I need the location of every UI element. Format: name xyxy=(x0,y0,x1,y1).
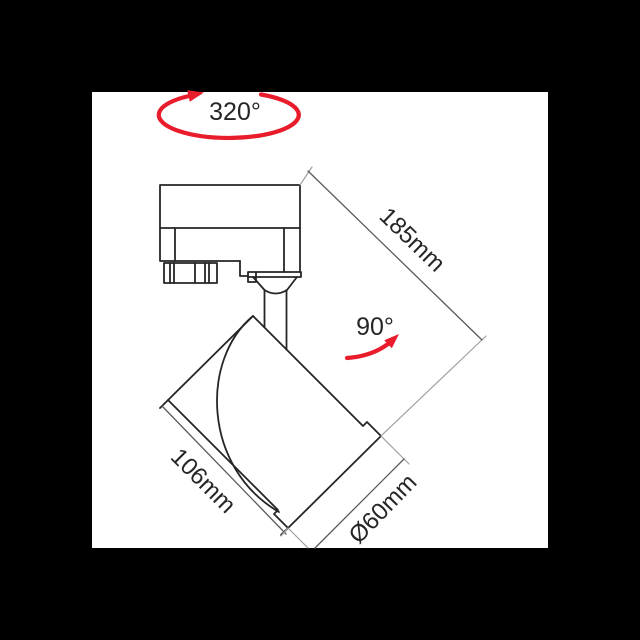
label-90-degrees: 90° xyxy=(356,313,394,341)
diagram-stage: 185mm 106mm Ø60mm 320° 90° xyxy=(0,0,640,640)
diagram-canvas: 185mm 106mm Ø60mm 320° 90° xyxy=(0,0,640,640)
label-320-degrees: 320° xyxy=(209,98,261,126)
white-panel xyxy=(92,92,548,548)
